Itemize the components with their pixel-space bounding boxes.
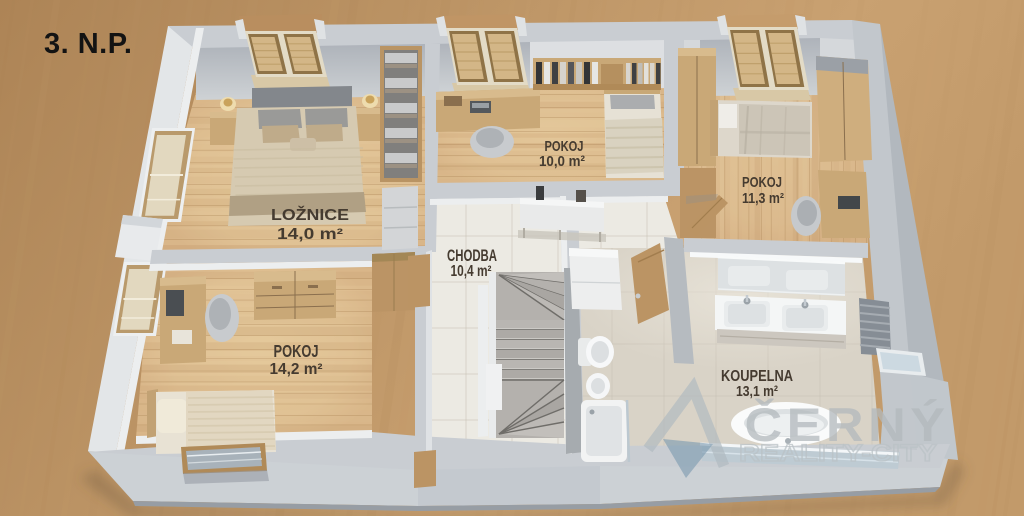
svg-text:11,3 m²: 11,3 m² (742, 191, 784, 207)
svg-text:3. N.P.: 3. N.P. (44, 28, 132, 60)
svg-text:10,4 m²: 10,4 m² (451, 263, 492, 280)
svg-text:LOŽNICE: LOŽNICE (271, 205, 349, 224)
svg-text:POKOJ: POKOJ (274, 341, 319, 361)
svg-text:10,0 m²: 10,0 m² (539, 153, 585, 170)
svg-text:REALITY-CITY: REALITY-CITY (739, 440, 937, 467)
svg-text:14,0 m²: 14,0 m² (277, 226, 343, 243)
svg-text:14,2 m²: 14,2 m² (270, 361, 323, 378)
svg-text:POKOJ: POKOJ (742, 174, 782, 191)
